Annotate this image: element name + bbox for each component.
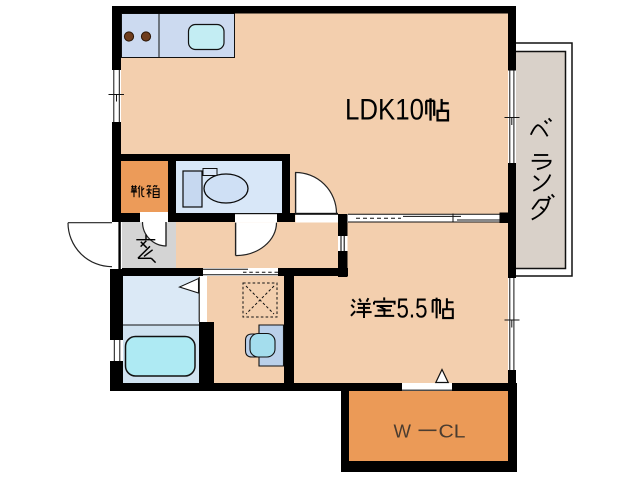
svg-text:W: W (394, 421, 412, 442)
svg-text:5.5: 5.5 (397, 293, 428, 324)
svg-text:CL: CL (439, 421, 466, 442)
svg-text:LDK10: LDK10 (345, 94, 424, 127)
